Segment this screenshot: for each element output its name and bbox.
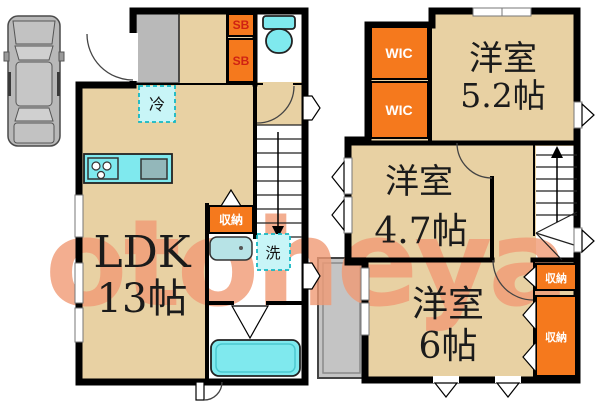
washbasin-icon — [210, 237, 252, 260]
room47-label-line1: 洋室 — [385, 162, 453, 202]
ldk-label-line2: 13帖 — [97, 276, 188, 322]
sink-icon — [141, 159, 167, 179]
entrance-door — [87, 33, 138, 81]
refrigerator-label: 冷 — [149, 95, 165, 114]
room52-label-line1: 洋室 — [469, 39, 537, 79]
window-room52-east — [582, 104, 594, 126]
storage-2f-small-label: 収納 — [545, 271, 567, 285]
floorplan-image: otoheya SB SB — [0, 0, 600, 402]
bathtub-icon — [211, 340, 300, 376]
wic-closets: WIC WIC — [371, 27, 428, 138]
shoebox-bottom-label: SB — [233, 54, 250, 68]
floorplan-svg: otoheya SB SB — [0, 0, 600, 402]
room6-label-line1: 洋室 — [412, 284, 484, 325]
storage-2f-large-label: 収納 — [545, 330, 567, 344]
washing-machine-space: 洗 — [257, 234, 290, 270]
window-room47-west1 — [332, 162, 344, 192]
room47-label-line2: 4.7帖 — [374, 211, 467, 252]
shoebox-cabinets: SB SB — [228, 14, 254, 82]
window-stairs-east — [582, 230, 594, 252]
windows-ldk-west — [75, 195, 83, 342]
side-door-hall — [303, 96, 320, 120]
laundry-label: 洗 — [265, 244, 280, 262]
ldk-label-line1: LDK — [93, 227, 191, 278]
car-icon — [4, 16, 64, 146]
shoebox-top-label: SB — [233, 18, 250, 32]
kitchen-counter — [84, 154, 172, 183]
room6-label-line2: 6帖 — [419, 326, 478, 367]
wic-top-label: WIC — [385, 45, 412, 61]
window-room6-south1 — [435, 383, 457, 397]
room52-label-line2: 5.2帖 — [460, 76, 545, 115]
entryway-genkan — [136, 13, 179, 83]
wic-bottom-label: WIC — [385, 102, 412, 118]
refrigerator-space: 冷 — [139, 86, 175, 122]
window-room6-south2 — [497, 383, 519, 397]
storage-1f-label: 収納 — [219, 212, 243, 227]
toilet-icon — [263, 16, 295, 53]
